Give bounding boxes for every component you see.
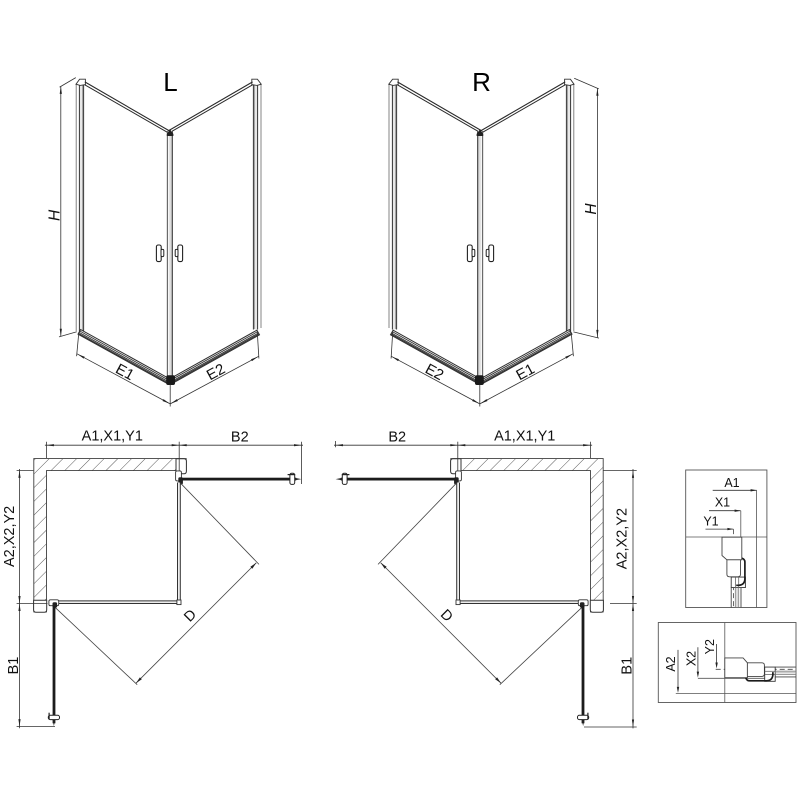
svg-text:Y1: Y1 xyxy=(703,515,718,529)
svg-text:B2: B2 xyxy=(388,430,406,446)
svg-text:B1: B1 xyxy=(619,657,635,675)
svg-text:A2,X2,Y2: A2,X2,Y2 xyxy=(2,506,18,567)
svg-text:L: L xyxy=(163,67,177,97)
svg-text:A1: A1 xyxy=(724,476,739,490)
svg-text:B1: B1 xyxy=(6,657,22,675)
svg-text:A2,X2,Y2: A2,X2,Y2 xyxy=(614,508,630,569)
svg-text:H: H xyxy=(583,203,600,215)
svg-text:H: H xyxy=(46,209,63,221)
svg-text:X1: X1 xyxy=(715,496,730,510)
svg-text:A2: A2 xyxy=(664,656,678,671)
svg-text:A1,X1,Y1: A1,X1,Y1 xyxy=(494,428,555,444)
svg-text:X2: X2 xyxy=(685,651,699,666)
svg-text:B2: B2 xyxy=(231,430,249,446)
svg-text:A1,X1,Y1: A1,X1,Y1 xyxy=(82,428,143,444)
svg-text:R: R xyxy=(472,67,491,97)
svg-text:Y2: Y2 xyxy=(703,639,717,654)
